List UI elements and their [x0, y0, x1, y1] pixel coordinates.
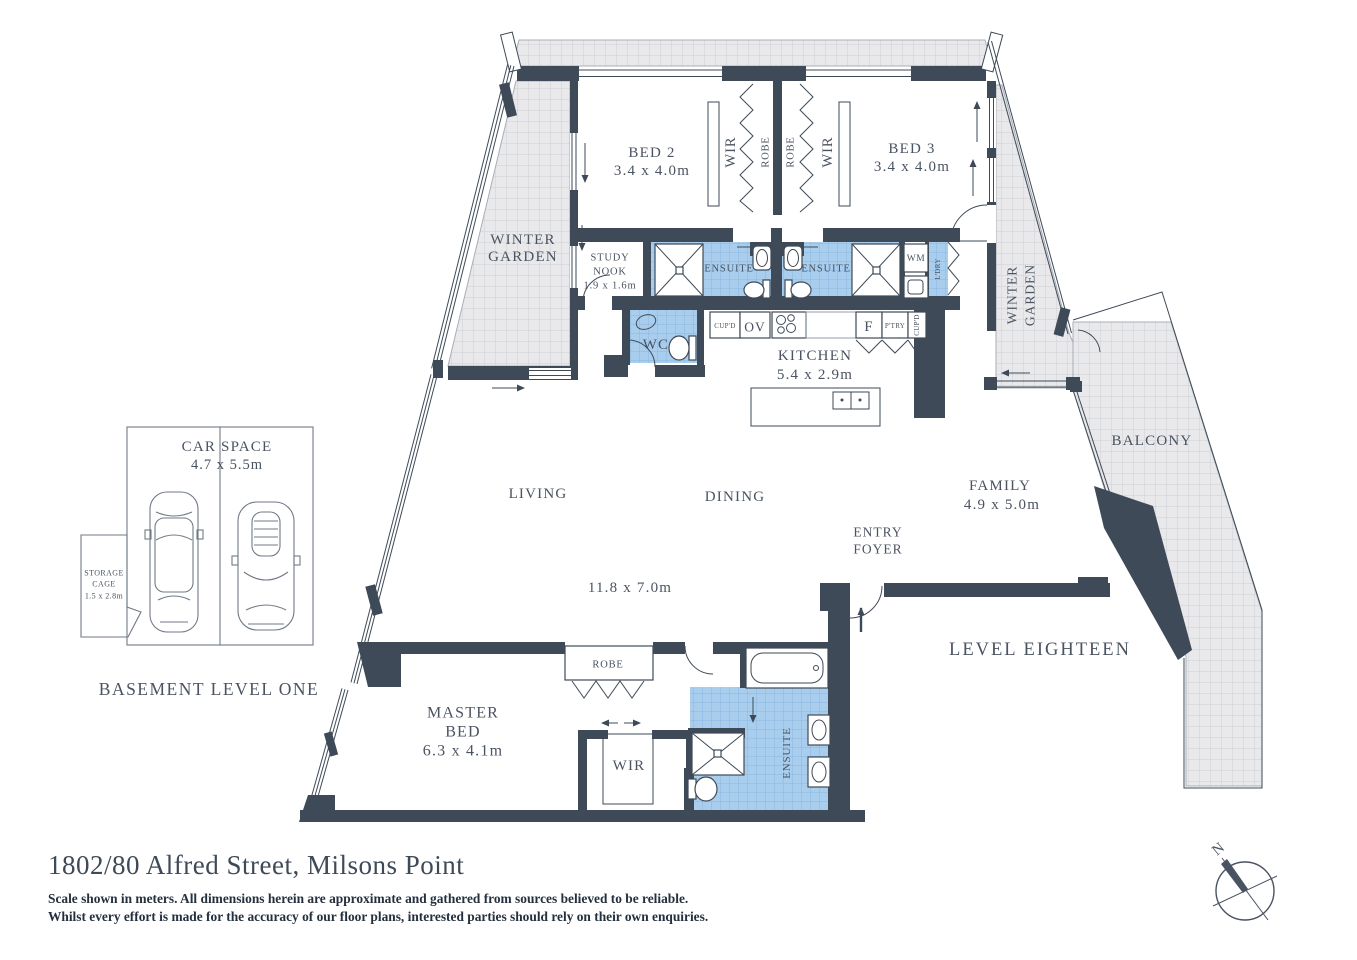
bed2-label: BED 2	[628, 145, 675, 161]
storage-cage-dims: 1.5 x 2.8m	[85, 592, 124, 601]
living-label: LIVING	[509, 486, 568, 502]
master-toilet	[695, 777, 717, 801]
bed3-wir-shelf	[839, 102, 850, 206]
master-label-2: BED	[445, 724, 481, 741]
dining-label: DINING	[705, 489, 766, 505]
oven-label: OV	[744, 320, 766, 335]
ensuite2-label: ENSUITE	[704, 264, 753, 275]
study-nook-label-1: STUDY	[590, 253, 629, 264]
study-nook-dims: 1.9 x 1.6m	[584, 281, 637, 292]
winter-garden-right-label-1: WINTER	[1005, 266, 1020, 324]
laundry-label: L'DRY	[934, 258, 942, 279]
master-wir-label: WIR	[613, 758, 646, 774]
bed2-wir-shelf	[708, 102, 719, 206]
compass: N	[1209, 839, 1277, 920]
wc-toilet-tank	[689, 336, 696, 360]
bed3-hanging-rail	[800, 84, 813, 212]
storage-cage-label-2: CAGE	[92, 580, 115, 589]
bed3-robe-label: ROBE	[786, 136, 797, 167]
master-label-1: MASTER	[427, 705, 499, 722]
bed2-dims: 3.4 x 4.0m	[614, 163, 690, 179]
winter-garden-right-floor	[996, 85, 1075, 388]
winter-garden-left-floor	[448, 81, 570, 366]
floorplan-drawing: N WINTER GARDEN BED 2 3.4 x 4.0m BED 3 3…	[0, 0, 1357, 960]
winter-garden-left-label-1: WINTER	[490, 232, 556, 248]
winter-garden-right-label-2: GARDEN	[1023, 264, 1038, 326]
bed3-dims: 3.4 x 4.0m	[874, 159, 950, 175]
laundry-bifold-door	[948, 242, 959, 295]
bed2-hanging-rail	[740, 84, 753, 212]
wc-label: WC	[643, 337, 670, 353]
ensuite3-label: ENSUITE	[801, 264, 850, 275]
family-label: FAMILY	[969, 478, 1031, 494]
cupboard-left-label: CUP'D	[714, 322, 735, 330]
disclaimer-line-2: Whilst every effort is made for the accu…	[48, 908, 708, 926]
bed3-label: BED 3	[888, 141, 935, 157]
compass-north-label: N	[1209, 839, 1229, 859]
top-eave-strip	[512, 40, 992, 66]
master-door	[685, 646, 713, 674]
disclaimer: Scale shown in meters. All dimensions he…	[48, 890, 708, 925]
kitchen-label: KITCHEN	[778, 348, 852, 364]
basement-label: BASEMENT LEVEL ONE	[99, 679, 319, 699]
cupboard-right-label: CUP'D	[913, 314, 921, 335]
floorplan-page: N WINTER GARDEN BED 2 3.4 x 4.0m BED 3 3…	[0, 0, 1357, 960]
family-dims: 4.9 x 5.0m	[964, 497, 1040, 513]
storage-cage-label-1: STORAGE	[84, 569, 124, 578]
living-dims: 11.8 x 7.0m	[588, 580, 672, 596]
car-space-label: CAR SPACE	[182, 439, 273, 455]
master-ensuite-label: ENSUITE	[781, 727, 793, 778]
kitchen-island	[751, 388, 880, 426]
bed2-robe-label: ROBE	[761, 136, 772, 167]
bed3-wir-label: WIR	[820, 136, 836, 167]
level-label: LEVEL EIGHTEEN	[949, 640, 1131, 660]
entry-label-1: ENTRY	[853, 525, 902, 540]
master-robe-label: ROBE	[592, 660, 623, 671]
winter-garden-left-label-2: GARDEN	[488, 249, 558, 265]
car-sports	[232, 502, 300, 630]
balcony-floor	[1073, 322, 1262, 786]
car-space-dims: 4.7 x 5.5m	[191, 457, 263, 473]
study-nook-label-2: NOOK	[593, 267, 627, 278]
bed2-wir-label: WIR	[723, 136, 739, 167]
wm-label: WM	[907, 254, 925, 264]
balcony-label: BALCONY	[1112, 433, 1193, 449]
page-title: 1802/80 Alfred Street, Milsons Point	[48, 850, 464, 881]
wc-toilet	[669, 336, 689, 360]
pantry-label: P'TRY	[885, 322, 905, 330]
kitchen-dims: 5.4 x 2.9m	[777, 367, 853, 383]
entry-label-2: FOYER	[853, 542, 902, 557]
master-dims: 6.3 x 4.1m	[423, 743, 503, 760]
fridge-label: F	[864, 319, 874, 335]
car-sedan	[145, 492, 203, 632]
disclaimer-line-1: Scale shown in meters. All dimensions he…	[48, 890, 708, 908]
